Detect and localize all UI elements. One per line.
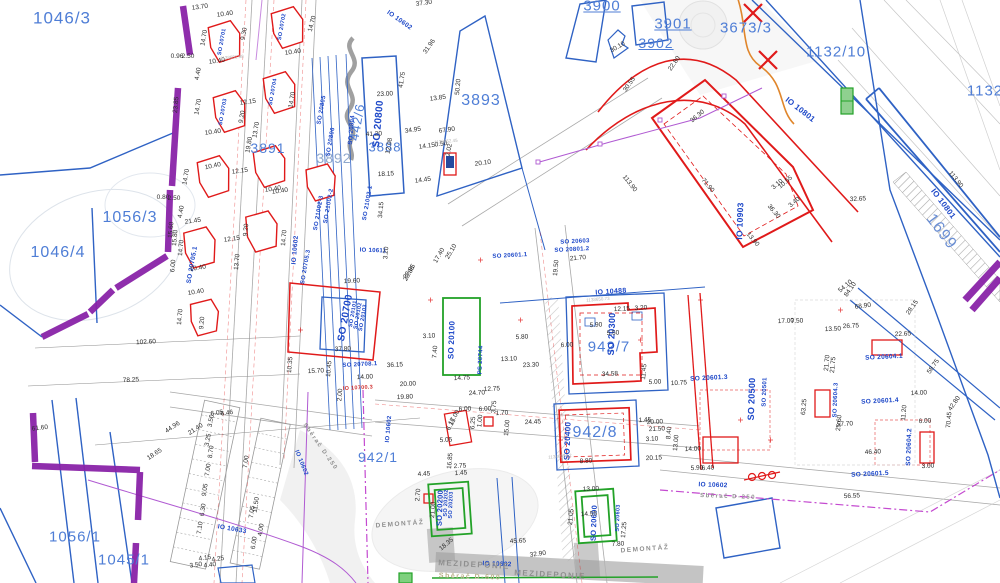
dimension-label: 11.45 (641, 364, 649, 380)
dimension-label: 26.75 (843, 323, 860, 330)
dimension-label: 11.20 (901, 405, 909, 421)
dimension-label: 3.20 (635, 305, 648, 312)
dimension-label: 5.50 (607, 330, 620, 337)
parcel-label: 1056/3 (103, 210, 158, 226)
dimension-label: 12.15 (614, 306, 631, 313)
object-code-label: PS 20744 (477, 346, 484, 375)
parcel-label: 1056/1 (49, 530, 101, 545)
parcel-label: 1132/10 (806, 45, 866, 60)
dimension-label: 34.58 (602, 371, 619, 378)
dimension-label: 2.00 (337, 388, 345, 401)
object-code-label: SO 20501 (761, 377, 768, 407)
site-plan: 1046/31056/31046/41056/11045/13891389238… (0, 0, 1000, 583)
dimension-label: 1.45 (455, 470, 468, 477)
object-code-label: SO 20500 (747, 377, 757, 420)
dimension-label: 15.70 (308, 368, 325, 375)
dimension-label: 41.20 (366, 131, 383, 138)
parcel-label: 3901 (654, 17, 691, 32)
dimension-label: 45.65 (510, 538, 527, 545)
dimension-label: 5.90 (590, 322, 603, 329)
dimension-label: 2.50 (182, 54, 195, 61)
parcel-label: 942/1 (358, 450, 398, 464)
dimension-label: 24.45 (525, 419, 542, 426)
dimension-label: 13.50 (825, 326, 842, 333)
dimension-label: 13.10 (501, 356, 518, 363)
dimension-label: 1.70 (496, 410, 509, 417)
parcel-label: 3900 (583, 0, 620, 14)
parcel-label: 3892 (316, 151, 351, 165)
dimension-label: 78.25 (123, 377, 140, 384)
object-code-label: SO 20203 (449, 491, 455, 518)
dimension-label: 6.00 (561, 342, 574, 349)
object-code-label: SO 20604.3 (832, 382, 839, 417)
dimension-label: 56.55 (844, 493, 861, 500)
dimension-label: 21.50 (649, 426, 666, 433)
dimension-label: 7.40 (432, 345, 440, 358)
dimension-label: 7.50 (791, 318, 804, 325)
parcel-label: 1132 (967, 84, 1000, 99)
object-code-label: IO 10903 (735, 202, 745, 240)
parcel-label: 1046/3 (33, 10, 91, 27)
dimension-label: 3.00 (922, 463, 935, 470)
dimension-label: 9.20 (243, 223, 251, 236)
dimension-label: 36.15 (387, 362, 404, 369)
dimension-label: 14.75 (454, 375, 471, 382)
dimension-label: 5.00 (649, 379, 662, 386)
dimension-label: 8.80 (580, 458, 593, 465)
dimension-label: 6.00 (170, 259, 178, 272)
dimension-label: 13.00 (583, 486, 600, 493)
dimension-label: 19.60 (344, 278, 361, 285)
dimension-label: 3.10 (646, 436, 659, 443)
parcel-label: 3673/3 (720, 21, 772, 36)
dimension-label: 20.15 (646, 455, 663, 462)
parcel-label: 3891 (250, 141, 285, 155)
dimension-label: 1.45 (639, 417, 652, 424)
object-code-label: SO 20100 (447, 321, 456, 360)
dimension-label: 14.00 (357, 374, 374, 381)
parcel-label: 3893 (461, 93, 501, 109)
parcel-label: 942/8 (572, 425, 617, 441)
dimension-label: 23.30 (523, 362, 540, 369)
parking-rows (170, 400, 290, 569)
dimension-label: 5.05 (440, 437, 453, 444)
dimension-label: 6.00 (919, 418, 932, 425)
dimension-label: 23.00 (377, 91, 394, 98)
dimension-label: 37.80 (335, 346, 352, 353)
dimension-label: 18.15 (378, 171, 395, 178)
dimension-label: 46.40 (865, 449, 882, 456)
dimension-label: 22.65 (895, 331, 912, 338)
terrain-contours (0, 0, 820, 583)
dimension-label: 3.10 (423, 333, 436, 340)
dimension-label: 2.50 (168, 196, 181, 203)
benchmark-crosses (298, 258, 843, 443)
dimension-label: 10.75 (671, 380, 688, 387)
dimension-label: 12.75 (484, 386, 501, 393)
dimension-label: 32.65 (850, 196, 867, 203)
dimension-label: 6.40 (702, 465, 715, 472)
dimension-label: 14.55 (581, 511, 598, 518)
dimension-label: 19.80 (397, 394, 414, 401)
dimension-label: 3.20 (383, 246, 391, 259)
dimension-label: 9.20 (199, 316, 207, 329)
dimension-label: 57.70 (837, 421, 854, 428)
parcel-label: 1046/4 (31, 245, 86, 261)
dimension-label: 14.00 (685, 446, 702, 453)
dimension-label: 1.00 (477, 414, 485, 427)
parcel-label: 3902 (638, 36, 673, 50)
parcel-label: 1045/1 (98, 553, 150, 568)
dimension-label: 5.80 (516, 334, 529, 341)
dimension-label: 4.45 (418, 471, 431, 478)
object-code-label: SO 20604.2 (906, 428, 914, 466)
object-code-label: IO 10602 (698, 482, 727, 490)
dimension-label: 14.00 (911, 390, 928, 397)
dimension-label: 24.70 (469, 390, 486, 397)
dimension-label: 20.00 (400, 381, 417, 388)
dimension-label: 102.60 (136, 339, 156, 347)
dimension-label: 2.70 (415, 488, 423, 501)
